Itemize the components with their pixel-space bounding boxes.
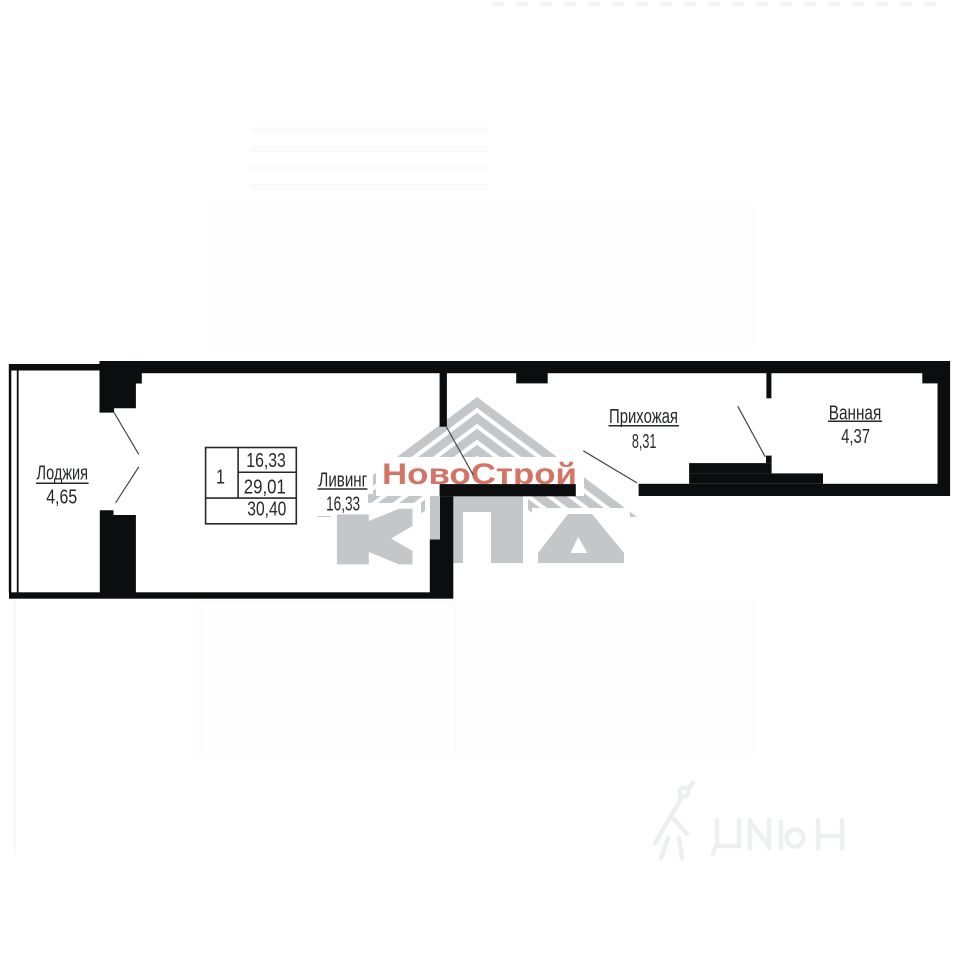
svg-text:30,40: 30,40 — [247, 498, 286, 521]
svg-text:Прихожая: Прихожая — [609, 405, 678, 428]
svg-text:8,31: 8,31 — [632, 430, 657, 453]
svg-text:Лоджия: Лоджия — [37, 461, 89, 484]
svg-text:4,65: 4,65 — [46, 485, 77, 508]
svg-text:4,37: 4,37 — [841, 425, 870, 448]
svg-text:16,33: 16,33 — [246, 449, 286, 472]
svg-text:Ливинг: Ливинг — [318, 468, 367, 491]
svg-text:16,33: 16,33 — [326, 492, 360, 515]
svg-text:29,01: 29,01 — [244, 476, 286, 499]
svg-text:1: 1 — [216, 466, 225, 489]
